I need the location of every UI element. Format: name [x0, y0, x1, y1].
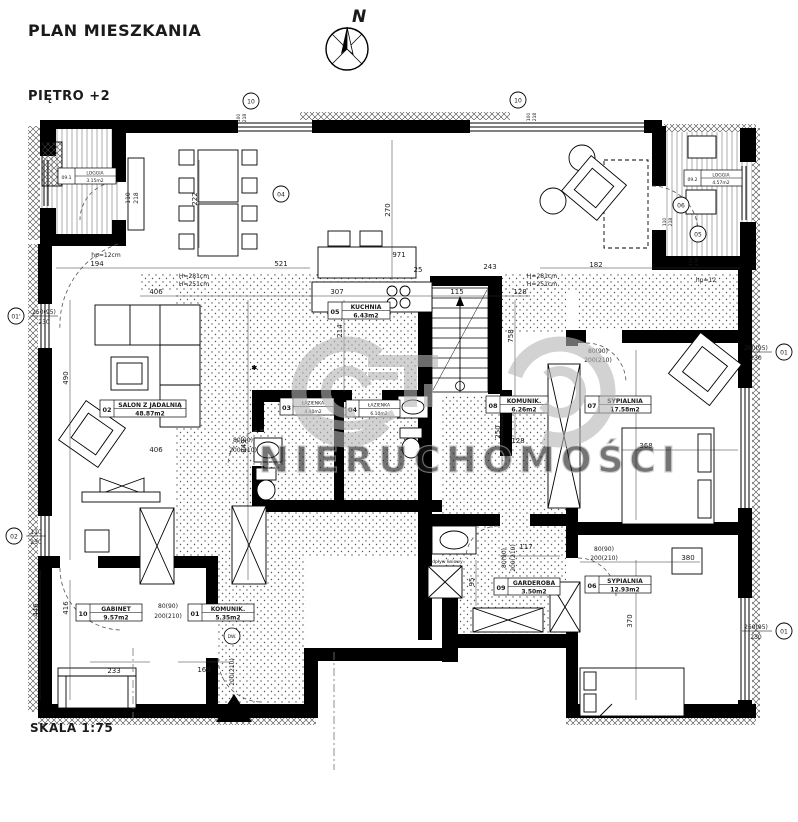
- dimension-text: 128: [513, 288, 526, 296]
- room-label-salon-02: 02 SALON Z JADALNIĄ 48.87m2: [100, 400, 186, 418]
- room-label-loggia-092: 09.2 LOGGIA 4.57m2: [684, 170, 742, 186]
- room-area: 3.50m2: [521, 589, 546, 596]
- dimension-text: 380: [681, 554, 694, 562]
- room-number: 02: [102, 406, 111, 414]
- room-number: 07: [587, 402, 596, 410]
- window-ref-size: 230: [750, 634, 762, 641]
- window-ref-size: 230: [38, 319, 50, 326]
- shelf: [85, 530, 109, 552]
- door-size: 200(210): [229, 447, 257, 454]
- room-name: GABINET: [101, 606, 131, 613]
- window-ref-size: 110: [688, 258, 694, 267]
- window-ref-id: 06: [677, 203, 685, 210]
- window-ref-size: 218: [668, 218, 674, 227]
- dimension-text: 446: [32, 603, 40, 617]
- page-title: PLAN MIESZKANIA: [28, 21, 201, 40]
- door-size: 200(210): [590, 555, 618, 562]
- room-label-komunik-01: 01 KOMUNIK. 5.35m2: [188, 604, 254, 622]
- room-area: 5.35m2: [215, 615, 240, 622]
- room-label-sypialnia-07: 07 SYPIALNIA 17.58m2: [585, 396, 651, 414]
- dimension-text: 95: [468, 578, 476, 587]
- dimension-text: 25: [414, 266, 423, 274]
- scale-note: SKALA 1:75: [30, 721, 113, 735]
- deco-armchair: [669, 333, 742, 406]
- room-area: 12.93m2: [610, 587, 639, 594]
- lounge-nook: [540, 145, 648, 248]
- window-ref: 10 100 218: [236, 93, 259, 122]
- door-size: 80(90): [501, 548, 508, 568]
- room-area: 4.57m2: [712, 180, 729, 186]
- dimension-text: 370: [626, 614, 634, 627]
- window-ref-id: 10: [514, 98, 522, 105]
- floor-label: PIĘTRO +2: [28, 89, 110, 104]
- drain-note: odpływ liniowy: [429, 559, 463, 565]
- room-label-loggia-091: 09.1 LOGGIA 3.15m2: [58, 168, 116, 184]
- window-ref: 02 110 230: [6, 528, 46, 546]
- dimension-text: 182: [589, 261, 602, 269]
- door-size: 80(90): [158, 603, 178, 610]
- planter: [686, 190, 716, 214]
- window-ref-size: 218: [532, 113, 538, 122]
- window-ref-id: 01: [780, 629, 788, 636]
- bedroom-07-furniture: [622, 333, 741, 524]
- room-label-sypialnia-06: 06 SYPIALNIA 12.93m2: [585, 576, 651, 594]
- room-area: 6.26m2: [511, 407, 536, 414]
- dimension-text: 214: [336, 324, 344, 338]
- room-name: KOMUNIK.: [507, 398, 542, 405]
- room-area: 17.58m2: [610, 407, 639, 414]
- window-ref-size: 218: [242, 114, 248, 123]
- stove-burner: [387, 286, 397, 296]
- compass: N: [326, 7, 368, 70]
- window-ref-id: 01': [11, 314, 21, 321]
- dimension-text: 758: [507, 329, 515, 342]
- window-ref-size: 100: [236, 114, 242, 123]
- couch: [58, 668, 136, 708]
- window-ref-id: 02: [10, 534, 18, 541]
- room-label-komunik-08: 08 KOMUNIK. 6.26m2: [486, 396, 548, 414]
- window-ref-size: 110: [30, 529, 42, 536]
- dimension-text: 169: [197, 666, 210, 674]
- dimension-text: 115: [450, 288, 463, 296]
- window-ref-size: 260(95): [744, 345, 768, 352]
- dimension-text: 117: [519, 543, 532, 551]
- room-label-kuchnia-05: 05 KUCHNIA 6.43m2: [328, 302, 390, 320]
- dimension-text: 307: [330, 288, 343, 296]
- room-area: 9.57m2: [103, 615, 128, 622]
- door-size: 80(90): [233, 437, 253, 444]
- room-number: 05: [330, 308, 340, 316]
- dimension-text: 250: [494, 425, 502, 438]
- dimension-text: 194: [90, 260, 104, 268]
- door-size: 200(210): [154, 613, 182, 620]
- window-ref-size: 100: [526, 113, 532, 122]
- window-ref-size: 260(95): [744, 624, 768, 631]
- height-note: H=251cm: [527, 281, 557, 288]
- floor-plan-svg: PLAN MIESZKANIA PIĘTRO +2 N: [0, 0, 798, 822]
- window-ref-id: 10: [247, 99, 255, 106]
- room-name: LOGGIA: [712, 173, 730, 179]
- room-name: GARDEROBA: [513, 580, 556, 587]
- window-ref-size: 250(95): [32, 309, 56, 316]
- room-name: KOMUNIK.: [211, 606, 246, 613]
- fixture-symbol: *: [252, 365, 257, 375]
- dimension-text: 416: [62, 601, 70, 615]
- window-ref-size: 230: [30, 539, 42, 546]
- room-number: 09.2: [687, 177, 697, 183]
- window-ref-size: 110: [662, 218, 668, 227]
- dimension-text: 406: [149, 446, 163, 454]
- room-number: 03: [282, 404, 291, 412]
- dimension-text: 233: [107, 667, 120, 675]
- room-name: SALON Z JADALNIĄ: [118, 402, 182, 409]
- room-number: 01: [190, 610, 200, 618]
- window-ref-id: 04: [277, 192, 285, 199]
- dimension-text: 270: [384, 203, 392, 216]
- window-ref-size: 218: [694, 258, 700, 267]
- dimension-text: 222: [191, 192, 199, 205]
- window-ref: 10 100 218: [510, 92, 538, 121]
- door-size: 200(210): [229, 658, 236, 686]
- bedroom-06-furniture: [580, 548, 702, 716]
- room-name: LOGGIA: [86, 171, 104, 177]
- room-name: KUCHNIA: [351, 304, 382, 311]
- stairs: [432, 288, 488, 392]
- planter: [688, 136, 716, 158]
- hp-note: hp=12: [696, 277, 716, 284]
- room-label-gabinet-10: 10 GABINET 9.57m2: [76, 604, 142, 622]
- stove-burner: [400, 298, 410, 308]
- dw-label: DW.: [228, 634, 237, 640]
- room-name: SYPIALNIA: [607, 578, 643, 585]
- room-name: ŁAZIENKA: [367, 403, 391, 409]
- window-ref-id: 01: [780, 350, 788, 357]
- height-note: H=251cm: [179, 281, 209, 288]
- tv-board: [82, 492, 160, 502]
- watermark-text: NIERUCHOMOŚCI: [259, 439, 681, 481]
- compass-needle-light: [347, 27, 353, 54]
- door-size: 80(90): [594, 546, 614, 553]
- height-note: H=281cm: [179, 273, 209, 280]
- header: PLAN MIESZKANIA PIĘTRO +2: [28, 21, 201, 104]
- dimension-text: 521: [274, 260, 287, 268]
- window-ref-size: 230: [750, 355, 762, 362]
- floor-plan-page: { "header": { "title": "PLAN MIESZKANIA"…: [0, 0, 798, 822]
- room-number: 10: [78, 610, 88, 618]
- room-number: 09.1: [61, 175, 71, 181]
- hp-note: hp=12cm: [91, 252, 121, 259]
- room-area: 3.15m2: [86, 178, 103, 184]
- room-area: 48.87m2: [135, 411, 164, 418]
- room-area: 6.43m2: [353, 313, 378, 320]
- window-ref-id: 05: [694, 232, 702, 239]
- round-table: [540, 188, 566, 214]
- height-note: H=281cm: [527, 273, 557, 280]
- stove-burner: [400, 286, 410, 296]
- dimension-text: 971: [392, 251, 405, 259]
- door-size: 200(210): [510, 544, 517, 572]
- room-label-garderoba-09: 09 GARDEROBA 3.50m2: [494, 578, 560, 596]
- room-number: 06: [587, 582, 597, 590]
- dimension-text: 490: [62, 371, 70, 384]
- window-ref-size: 218: [133, 192, 140, 204]
- dimension-text: 243: [483, 263, 496, 271]
- room-number: 09: [496, 584, 506, 592]
- window-ref-size: 110: [125, 192, 132, 204]
- dimension-text: 406: [149, 288, 163, 296]
- compass-north-letter: N: [352, 7, 366, 27]
- room-number: 08: [488, 402, 498, 410]
